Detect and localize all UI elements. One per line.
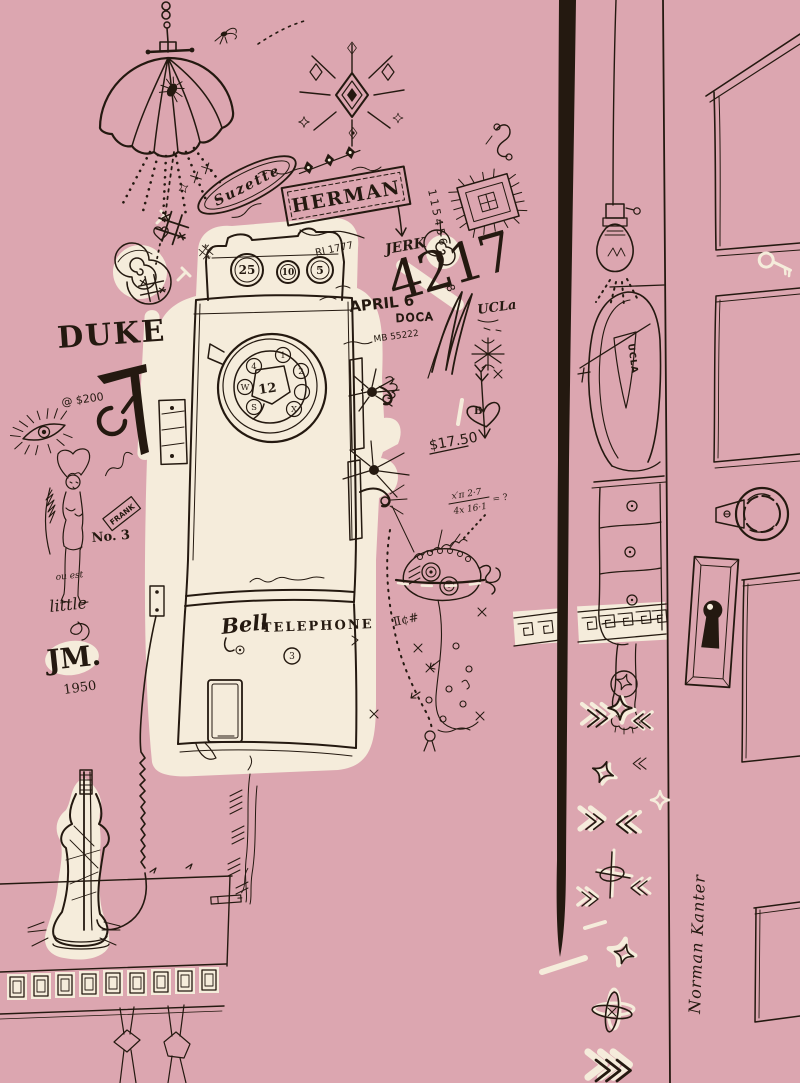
lower-number-text: 3 [289,652,295,662]
dial-center-number: 12 [257,381,277,398]
dial-label-2: 2 [298,367,303,377]
coin-10-label: 10 [282,268,295,278]
dial-label-1: 1 [280,351,285,361]
dial-label-w: W [241,383,250,393]
doca-text: DOCA [395,310,434,325]
coin-5-label: 5 [316,264,324,277]
coin-25-label: 25 [239,263,256,277]
heart-letter: B [474,406,482,417]
coin-slot-10: 10 [277,261,299,283]
coin-slot-5: 5 [307,257,333,283]
illustration-canvas: Suzette HERMAN RI 1777 JERK 4217 APRIL 6… [0,0,800,1083]
drawing: Suzette HERMAN RI 1777 JERK 4217 APRIL 6… [0,0,800,1083]
jm-monogram: JM. [42,638,102,677]
dial-label-x: X [291,405,298,415]
dial-label-s: S [251,403,257,413]
little-text: little [48,593,87,616]
